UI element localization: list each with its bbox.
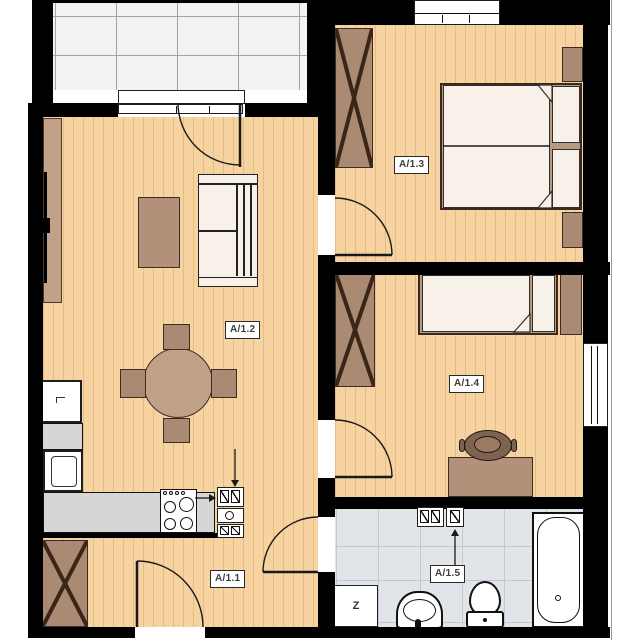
sink xyxy=(396,591,443,629)
washing-machine: Z xyxy=(334,585,378,627)
single-bed-duvet xyxy=(422,275,530,332)
kitchen-appliance-box-bottom xyxy=(217,524,244,538)
single-bed-pillow xyxy=(532,275,555,332)
stove-knob-3 xyxy=(175,491,179,495)
living-top-wall-right xyxy=(245,103,318,117)
bedroom1-wardrobe xyxy=(335,28,373,168)
site-boundary-line xyxy=(611,0,612,640)
bedroom2-door-opening xyxy=(318,420,335,478)
living-top-wall-left xyxy=(43,103,118,117)
sofa-armrest-bottom xyxy=(199,277,257,279)
bathtub-drain xyxy=(555,595,561,601)
desk-chair-armrest-right xyxy=(511,439,517,452)
bedroom2-cabinet xyxy=(560,272,582,335)
bedroom-divider-wall xyxy=(318,262,610,275)
desk xyxy=(448,457,533,497)
nightstand-top xyxy=(562,47,583,82)
sofa-cushion-divider xyxy=(199,230,237,232)
fridge xyxy=(40,380,82,423)
dining-chair-bottom xyxy=(163,418,190,443)
toilet-tank xyxy=(466,611,504,628)
hatched-square xyxy=(420,510,429,523)
balcony-door-window xyxy=(118,90,245,104)
desk-chair xyxy=(464,430,512,461)
desk-chair-armrest-left xyxy=(459,439,465,452)
hatched-square xyxy=(231,526,240,535)
sofa-backrest-line3 xyxy=(250,184,252,276)
toilet-flush-button xyxy=(483,618,487,622)
sofa xyxy=(198,174,258,287)
washing-machine-label: Z xyxy=(353,600,360,612)
bathtub-inner xyxy=(537,517,580,623)
bedroom1-top-wall-left xyxy=(335,0,414,25)
stove-knob-2 xyxy=(169,491,173,495)
bedroom2-window xyxy=(583,343,608,427)
double-bed-duvet xyxy=(443,85,550,208)
stove-burner-2 xyxy=(179,497,194,512)
hallway-wardrobe xyxy=(42,540,88,627)
hatched-square xyxy=(220,526,229,535)
room-label-bedroom2: A/1.4 xyxy=(449,375,484,393)
mid-wall-seg2 xyxy=(318,255,335,420)
stove-burner-4 xyxy=(180,517,193,530)
entrance-door-opening xyxy=(135,627,205,640)
kitchen-plinth xyxy=(43,533,244,538)
bathtub xyxy=(532,512,585,628)
circle-symbol xyxy=(225,511,234,520)
kitchen-sink-unit xyxy=(43,450,83,492)
kitchen-appliance-box-top xyxy=(217,487,244,507)
sofa-armrest-top xyxy=(199,183,257,185)
double-bed-pillow-bottom xyxy=(552,149,580,208)
bottom-wall-right xyxy=(205,627,610,638)
room-label-living: A/1.2 xyxy=(225,321,260,339)
balcony-door-window-rail xyxy=(118,104,243,114)
tv-mount xyxy=(38,218,50,233)
right-outer-wall-lower xyxy=(583,427,608,638)
kitchen-appliance-box-mid xyxy=(217,508,244,523)
dining-chair-top xyxy=(163,324,190,350)
hatched-square xyxy=(231,490,240,503)
hatched-square xyxy=(220,490,229,503)
stove-knob-4 xyxy=(181,491,185,495)
coffee-table xyxy=(138,197,180,268)
kitchen-sink-basin xyxy=(51,456,77,487)
sofa-backrest-line2 xyxy=(243,184,245,276)
hatched-square xyxy=(450,510,460,523)
balcony-left-wall xyxy=(32,0,53,117)
bottom-wall-left xyxy=(28,627,135,638)
room-label-bedroom1: A/1.3 xyxy=(394,156,429,174)
balcony-right-wall xyxy=(307,0,335,117)
room-label-bathroom: A/1.5 xyxy=(430,565,465,583)
floor-plan: Z A/1.1 A/1.2 A/1.3 A/1.4 A/1.5 xyxy=(0,0,640,640)
mid-wall-seg1 xyxy=(318,117,335,195)
dining-chair-left xyxy=(120,369,146,398)
stove-burner-3 xyxy=(164,518,176,530)
right-outer-wall-upper xyxy=(583,0,608,343)
stove-burner-1 xyxy=(164,501,176,513)
bathroom-door-opening xyxy=(318,517,335,572)
desk-chair-seat xyxy=(474,436,501,453)
bedroom2-wardrobe xyxy=(335,273,375,387)
balcony-top-wall xyxy=(32,0,320,3)
dining-table xyxy=(143,348,213,418)
balcony-floor xyxy=(53,3,307,90)
stove-knob-1 xyxy=(163,491,167,495)
double-bed-pillow-top xyxy=(552,86,580,143)
fridge-hinge-mark xyxy=(56,397,65,403)
hatched-square xyxy=(431,510,440,523)
kitchen-counter-vertical xyxy=(38,423,83,450)
nightstand-bottom xyxy=(562,212,583,248)
bedroom1-door-opening xyxy=(318,195,335,255)
bathroom-shaft-box-right xyxy=(446,507,464,527)
bathroom-shaft-box-left xyxy=(417,507,444,527)
dining-chair-right xyxy=(211,369,237,398)
room-label-hallway: A/1.1 xyxy=(210,570,245,588)
left-outer-wall xyxy=(28,103,43,638)
bedroom1-window xyxy=(414,0,500,25)
